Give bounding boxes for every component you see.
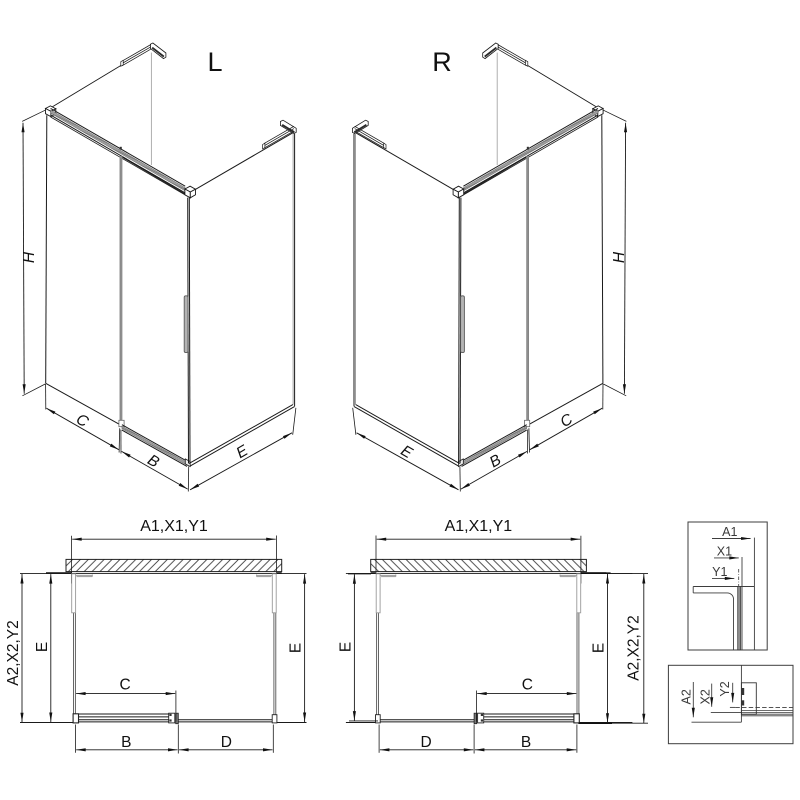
svg-text:A1: A1 <box>722 525 737 539</box>
svg-text:E: E <box>338 642 355 652</box>
svg-text:A1,X1,Y1: A1,X1,Y1 <box>140 518 208 535</box>
svg-text:H: H <box>21 251 38 263</box>
svg-text:A2: A2 <box>680 689 694 704</box>
svg-text:Y2: Y2 <box>718 681 732 696</box>
svg-text:Y1: Y1 <box>712 565 727 579</box>
svg-text:E: E <box>591 643 608 653</box>
svg-text:C: C <box>119 677 130 694</box>
svg-text:A1,X1,Y1: A1,X1,Y1 <box>445 518 513 535</box>
svg-text:A2,X2,Y2: A2,X2,Y2 <box>625 615 642 681</box>
svg-text:E: E <box>34 642 51 652</box>
svg-text:B: B <box>521 734 531 751</box>
svg-text:X2: X2 <box>698 689 712 704</box>
svg-text:L: L <box>207 47 222 77</box>
svg-text:R: R <box>432 47 452 77</box>
svg-text:C: C <box>522 677 533 694</box>
svg-text:D: D <box>221 734 232 751</box>
svg-text:D: D <box>420 734 431 751</box>
svg-text:X1: X1 <box>717 545 732 559</box>
svg-text:A2,X2,Y2: A2,X2,Y2 <box>5 620 22 686</box>
svg-text:B: B <box>121 734 131 751</box>
svg-text:H: H <box>611 251 628 263</box>
svg-text:E: E <box>288 643 305 653</box>
